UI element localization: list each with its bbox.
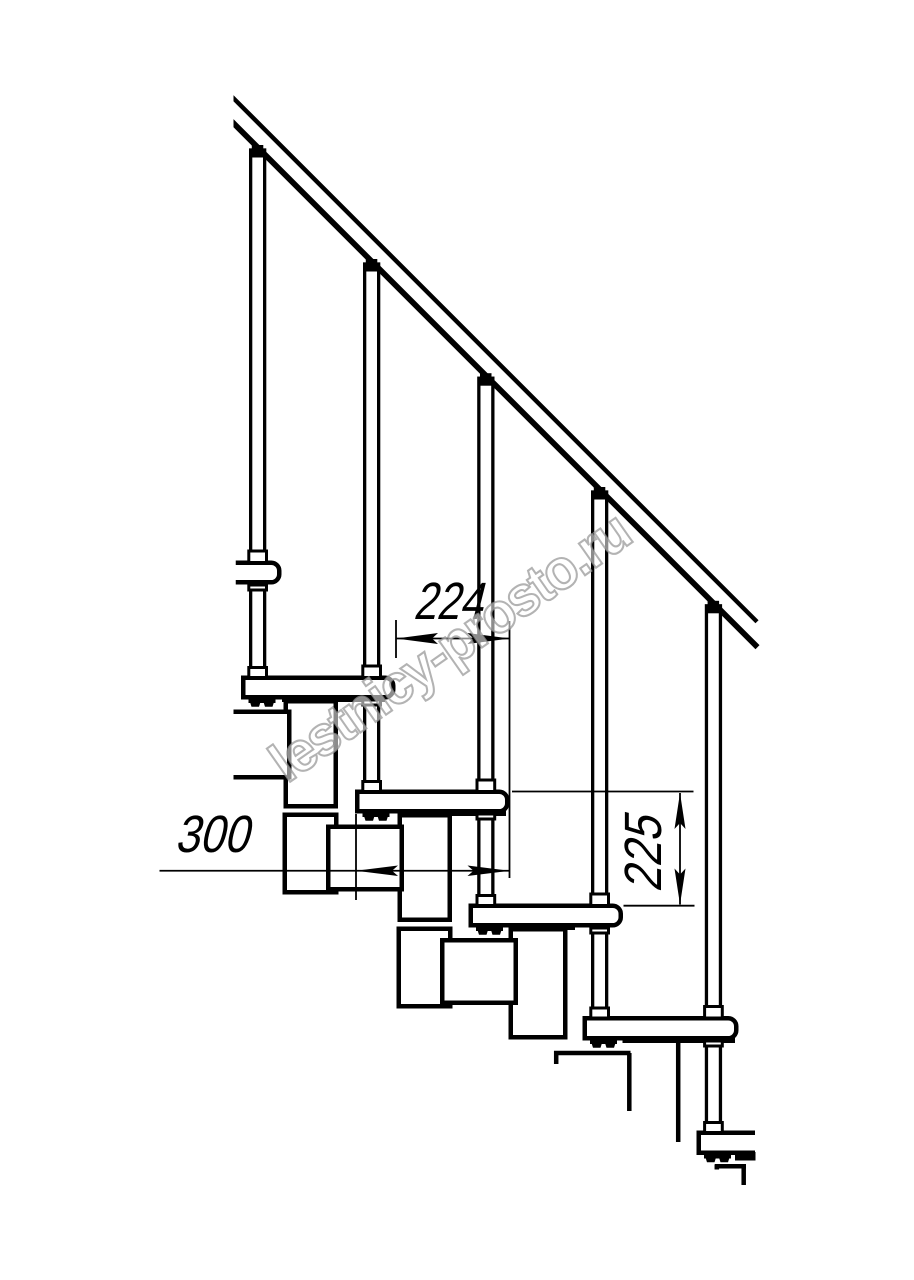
svg-text:225: 225	[614, 805, 673, 895]
svg-text:300: 300	[172, 805, 260, 864]
